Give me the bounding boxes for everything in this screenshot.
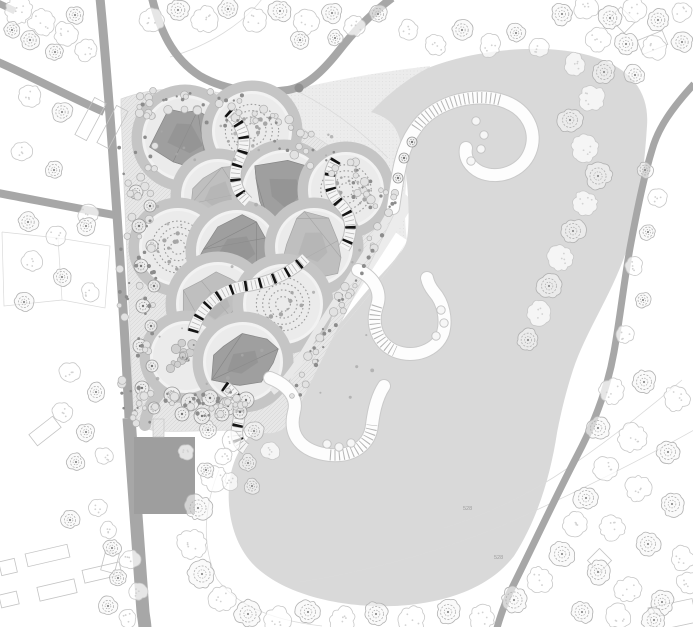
tree-foliage-dot — [187, 542, 189, 544]
shrub-dot — [182, 356, 184, 358]
tree-foliage-dot — [148, 17, 150, 19]
tree-foliage-dot — [440, 49, 442, 51]
small-tree-dot — [245, 399, 247, 401]
tree-foliage-dot — [107, 528, 109, 530]
planting-shrub — [385, 209, 393, 217]
tree-foliage-dot — [631, 261, 633, 263]
tree-foliage-dot — [650, 45, 652, 47]
planting-dot — [380, 233, 384, 237]
pier-planter — [335, 443, 343, 451]
road-junction-marker — [295, 84, 304, 93]
planting-shrub — [391, 194, 397, 200]
tree-foliage-dot — [614, 528, 616, 530]
tree-foliage-dot — [541, 313, 543, 315]
tree-foliage-dot — [408, 33, 410, 35]
planting-dot — [189, 92, 192, 95]
planting-speck — [330, 135, 333, 138]
shrub-dot — [186, 357, 188, 359]
planting-shrub — [316, 334, 324, 342]
small-tree-dot — [141, 387, 143, 389]
planting-dot — [361, 186, 363, 188]
planting-dot — [134, 264, 138, 268]
tree-foliage-dot — [587, 197, 589, 199]
small-tree-dot — [201, 415, 203, 417]
tree-center-dot — [117, 577, 119, 579]
planting-dot — [162, 238, 166, 242]
planting-shrub — [136, 400, 142, 406]
tree-foliage-dot — [209, 14, 211, 16]
planting-dot — [360, 272, 364, 276]
tree-center-dot — [247, 613, 249, 615]
planting-speck — [243, 192, 245, 194]
tree-deciduous — [222, 473, 238, 491]
tree-foliage-dot — [585, 92, 587, 94]
planting-shrub — [236, 110, 242, 116]
tree-foliage-dot — [268, 454, 270, 456]
planting-dot — [348, 180, 351, 183]
tree-foliage-dot — [226, 455, 228, 457]
tree-foliage-dot — [45, 26, 47, 28]
tree-center-dot — [207, 429, 209, 431]
planting-dot — [299, 393, 303, 397]
planting-speck — [183, 147, 186, 150]
tree-foliage-dot — [633, 270, 635, 272]
planting-dot — [148, 154, 152, 158]
planting-dot — [137, 337, 140, 340]
tree-foliage-dot — [637, 441, 639, 443]
planting-shrub — [224, 399, 231, 406]
planting-dot — [148, 421, 151, 424]
planting-dot — [224, 98, 228, 102]
tree-deciduous — [95, 448, 113, 464]
planting-shrub — [307, 162, 314, 169]
tree-deciduous — [614, 577, 642, 602]
tree-foliage-dot — [271, 620, 273, 622]
tree-deciduous — [18, 85, 40, 107]
planting-speck — [312, 291, 315, 294]
planting-dot — [390, 202, 394, 206]
planting-dot — [162, 99, 165, 102]
tree-foliage-dot — [88, 290, 90, 292]
tree-foliage-dot — [16, 7, 18, 9]
tree-foliage-dot — [679, 397, 681, 399]
tree-center-dot — [647, 543, 649, 545]
tree-foliage-dot — [21, 11, 23, 13]
planting-shrub — [237, 98, 242, 103]
planting-shrub — [303, 148, 309, 154]
tree-foliage-dot — [224, 453, 226, 455]
tree-foliage-dot — [107, 459, 109, 461]
tree-center-dot — [251, 485, 253, 487]
tree-foliage-dot — [577, 61, 579, 63]
shrub-dot — [188, 359, 190, 361]
building-hatch-pad — [153, 419, 164, 437]
planting-shrub — [137, 234, 142, 239]
tree-foliage-dot — [228, 436, 230, 438]
tree-foliage-dot — [678, 562, 680, 564]
planting-shrub — [130, 415, 136, 421]
planting-speck — [241, 354, 244, 357]
tree-foliage-dot — [679, 558, 681, 560]
tree-foliage-dot — [540, 307, 542, 309]
planting-dot — [201, 402, 204, 405]
tree-foliage-dot — [187, 546, 189, 548]
planting-dot — [341, 298, 344, 301]
planting-dot — [140, 344, 144, 348]
tree-foliage-dot — [206, 17, 208, 19]
tree-foliage-dot — [94, 504, 96, 506]
planting-shrub — [187, 403, 195, 411]
tree-center-dot — [644, 169, 646, 171]
tree-foliage-dot — [128, 557, 130, 559]
planting-shrub — [341, 283, 349, 291]
planting-shrub — [383, 190, 388, 195]
planting-speck — [231, 265, 234, 268]
planting-dot — [334, 323, 338, 327]
tree-foliage-dot — [587, 153, 589, 155]
planting-dot — [165, 98, 168, 101]
tree-foliage-dot — [617, 386, 619, 388]
tree-center-dot — [334, 37, 336, 39]
tree-foliage-dot — [28, 97, 30, 99]
planting-dot — [176, 95, 178, 97]
tree-center-dot — [585, 497, 587, 499]
tree-foliage-dot — [633, 584, 635, 586]
planting-shrub — [146, 99, 153, 106]
tree-foliage-dot — [105, 457, 107, 459]
planting-shrub — [288, 125, 293, 130]
tree-foliage-dot — [271, 451, 273, 453]
tree-center-dot — [107, 605, 109, 607]
planting-shrub — [135, 109, 143, 117]
tree-center-dot — [279, 10, 281, 12]
planting-shrub — [329, 308, 338, 317]
tree-foliage-dot — [217, 596, 219, 598]
planting-shrub — [364, 191, 370, 197]
planting-speck — [325, 154, 327, 156]
planting-speck — [233, 158, 237, 162]
planting-shrub — [121, 313, 129, 321]
planting-shrub — [140, 392, 148, 400]
planting-dot — [207, 414, 210, 417]
planting-dot — [258, 127, 261, 130]
pier-planter — [472, 117, 480, 125]
tree-foliage-dot — [355, 21, 357, 23]
tree-center-dot — [29, 39, 31, 41]
planting-dot — [122, 407, 125, 410]
tree-foliage-dot — [594, 39, 596, 41]
tree-foliage-dot — [355, 24, 357, 26]
tree-foliage-dot — [232, 478, 234, 480]
tree-foliage-dot — [534, 51, 536, 53]
tree-foliage-dot — [403, 30, 405, 32]
tree-foliage-dot — [227, 458, 229, 460]
tree-foliage-dot — [130, 560, 132, 562]
planting-dot — [368, 255, 371, 258]
tree-foliage-dot — [637, 491, 639, 493]
tree-foliage-dot — [62, 412, 64, 414]
planting-dot — [154, 277, 157, 280]
planting-shrub — [353, 173, 358, 178]
tree-foliage-dot — [311, 25, 313, 27]
small-tree-dot — [149, 205, 151, 207]
planting-dot — [290, 291, 293, 294]
tree-center-dot — [375, 613, 377, 615]
planting-shrub — [136, 93, 143, 100]
planting-speck — [159, 336, 161, 338]
planting-dot — [196, 399, 200, 403]
small-tree-dot — [151, 365, 153, 367]
tree-foliage-dot — [123, 615, 125, 617]
spot-elevation-label: 528 — [463, 506, 472, 512]
tree-foliage-dot — [146, 23, 148, 25]
tree-center-dot — [569, 119, 571, 121]
tree-center-dot — [299, 39, 301, 41]
planting-dot — [120, 392, 123, 395]
planting-shrub — [252, 111, 257, 116]
tree-foliage-dot — [98, 512, 100, 514]
tree-foliage-dot — [31, 258, 33, 260]
tree-foliage-dot — [216, 599, 218, 601]
planting-speck — [327, 134, 329, 136]
tree-foliage-dot — [253, 15, 255, 17]
shrub-clump — [174, 361, 180, 367]
tree-foliage-dot — [71, 371, 73, 373]
tree-foliage-dot — [680, 393, 682, 395]
tree-center-dot — [461, 29, 463, 31]
planting-dot — [236, 119, 239, 122]
planting-shrub — [116, 265, 124, 273]
small-tree-dot — [397, 177, 399, 179]
planting-dot — [362, 197, 366, 201]
planting-shrub — [137, 173, 145, 181]
tree-foliage-dot — [434, 42, 436, 44]
planting-shrub — [128, 213, 136, 221]
planting-shrub — [151, 166, 157, 172]
tree-foliage-dot — [632, 268, 634, 270]
planting-dot — [152, 270, 156, 274]
planting-dot — [129, 390, 132, 393]
planting-shrub — [290, 150, 299, 159]
planting-shrub — [304, 352, 313, 361]
tree-foliage-dot — [274, 623, 276, 625]
planting-dot — [322, 346, 324, 348]
planting-dot — [137, 386, 141, 390]
tree-foliage-dot — [563, 259, 565, 261]
tree-center-dot — [548, 285, 550, 287]
tree-deciduous — [616, 326, 634, 344]
planting-shrub — [142, 347, 147, 352]
tree-foliage-dot — [67, 30, 69, 32]
tree-foliage-dot — [301, 15, 303, 17]
planting-dot — [268, 116, 271, 119]
tree-foliage-dot — [138, 590, 140, 592]
tree-foliage-dot — [40, 22, 42, 24]
tree-foliage-dot — [22, 5, 24, 7]
planting-shrub — [260, 105, 268, 113]
site-plan: 528528 — [0, 0, 693, 627]
tree-center-dot — [95, 391, 97, 393]
planting-speck — [319, 392, 321, 394]
planting-speck — [356, 181, 359, 184]
tree-foliage-dot — [29, 91, 31, 93]
tree-foliage-dot — [60, 33, 62, 35]
tree-foliage-dot — [631, 7, 633, 9]
tree-foliage-dot — [65, 415, 67, 417]
tree-center-dot — [642, 299, 644, 301]
tree-foliage-dot — [587, 3, 589, 5]
planting-speck — [367, 184, 369, 186]
tree-foliage-dot — [591, 199, 593, 201]
small-tree-dot — [209, 397, 211, 399]
planting-speck — [355, 365, 358, 368]
planting-dot — [328, 329, 332, 333]
tree-foliage-dot — [85, 295, 87, 297]
planting-speck — [254, 203, 258, 207]
planting-dot — [288, 299, 292, 303]
tree-foliage-dot — [154, 22, 156, 24]
planting-shrub — [302, 381, 309, 388]
tree-center-dot — [653, 619, 655, 621]
tree-foliage-dot — [220, 474, 222, 476]
tree-foliage-dot — [640, 488, 642, 490]
tree-foliage-dot — [685, 10, 687, 12]
planting-dot — [122, 172, 125, 175]
tree-foliage-dot — [195, 548, 197, 550]
tree-foliage-dot — [652, 49, 654, 51]
tree-foliage-dot — [58, 234, 60, 236]
planting-shrub — [215, 100, 223, 108]
tree-foliage-dot — [610, 469, 612, 471]
tree-foliage-dot — [64, 408, 66, 410]
planting-shrub — [373, 204, 378, 209]
tree-foliage-dot — [60, 28, 62, 30]
planting-shrub — [209, 406, 214, 411]
tree-foliage-dot — [482, 612, 484, 614]
tree-foliage-dot — [574, 63, 576, 65]
tree-foliage-dot — [247, 21, 249, 23]
planting-speck — [358, 249, 361, 252]
tree-center-dot — [513, 599, 515, 601]
pier-planter — [437, 306, 445, 314]
tree-foliage-dot — [229, 442, 231, 444]
small-tree-dot — [153, 285, 155, 287]
planting-speck — [219, 125, 222, 128]
planting-dot — [256, 131, 260, 135]
tree-foliage-dot — [563, 253, 565, 255]
tree-center-dot — [634, 74, 636, 76]
planting-shrub — [169, 401, 174, 406]
planting-shrub — [296, 143, 303, 150]
planting-dot — [117, 146, 121, 150]
tree-center-dot — [307, 611, 309, 613]
tree-center-dot — [625, 43, 627, 45]
tree-foliage-dot — [26, 264, 28, 266]
tree-deciduous — [243, 8, 267, 32]
planting-speck — [166, 222, 169, 225]
tree-foliage-dot — [654, 201, 656, 203]
tree-foliage-dot — [187, 451, 189, 453]
tree-foliage-dot — [341, 621, 343, 623]
tree-foliage-dot — [220, 601, 222, 603]
planting-dot — [143, 296, 147, 300]
planting-dot — [167, 260, 171, 264]
planting-shrub — [127, 190, 134, 197]
planting-speck — [349, 396, 352, 399]
tree-center-dot — [377, 13, 379, 15]
tree-center-dot — [667, 451, 669, 453]
tree-foliage-dot — [539, 580, 541, 582]
tree-center-dot — [671, 503, 673, 505]
tree-foliage-dot — [636, 4, 638, 6]
planting-shrub — [285, 115, 294, 124]
tree-foliage-dot — [578, 68, 580, 70]
tree-foliage-dot — [622, 620, 624, 622]
small-tree-dot — [411, 141, 413, 143]
tree-center-dot — [597, 175, 599, 177]
planting-dot — [136, 354, 140, 358]
planting-shrub — [145, 165, 151, 171]
planting-speck — [226, 376, 230, 380]
planting-shrub — [145, 215, 153, 223]
planting-dot — [355, 279, 357, 281]
tree-foliage-dot — [675, 555, 677, 557]
planting-dot — [275, 121, 278, 124]
tree-center-dot — [572, 230, 574, 232]
tree-foliage-dot — [47, 27, 49, 29]
tree-foliage-dot — [407, 26, 409, 28]
tree-foliage-dot — [82, 209, 84, 211]
tree-foliage-dot — [615, 620, 617, 622]
tree-foliage-dot — [125, 556, 127, 558]
planting-shrub — [345, 293, 351, 299]
pier-planter — [440, 319, 448, 327]
planting-shrub — [152, 143, 159, 150]
tree-foliage-dot — [683, 584, 685, 586]
tree-foliage-dot — [135, 592, 137, 594]
tree-center-dot — [201, 573, 203, 575]
tree-foliage-dot — [35, 15, 37, 17]
planting-shrub — [124, 233, 131, 240]
tree-foliage-dot — [268, 447, 270, 449]
planting-dot — [150, 332, 154, 336]
tree-foliage-dot — [623, 618, 625, 620]
planting-dot — [217, 97, 220, 100]
tree-deciduous — [425, 34, 446, 55]
small-tree-dot — [140, 265, 142, 267]
tree-foliage-dot — [88, 47, 90, 49]
planting-dot — [118, 290, 122, 294]
planting-dot — [299, 304, 303, 308]
planting-shrub — [233, 402, 238, 407]
tree-foliage-dot — [575, 522, 577, 524]
tree-center-dot — [561, 553, 563, 555]
tree-foliage-dot — [125, 614, 127, 616]
planting-speck — [181, 327, 183, 329]
tree-foliage-dot — [610, 522, 612, 524]
planting-dot — [252, 139, 254, 141]
tree-foliage-dot — [585, 100, 587, 102]
tree-foliage-dot — [60, 34, 62, 36]
tree-foliage-dot — [22, 152, 24, 154]
tree-foliage-dot — [406, 613, 408, 615]
tree-foliage-dot — [591, 34, 593, 36]
planting-dot — [394, 201, 397, 204]
tree-deciduous — [529, 38, 549, 57]
tree-foliage-dot — [654, 196, 656, 198]
small-tree-dot — [403, 157, 405, 159]
planting-shrub — [353, 284, 357, 288]
